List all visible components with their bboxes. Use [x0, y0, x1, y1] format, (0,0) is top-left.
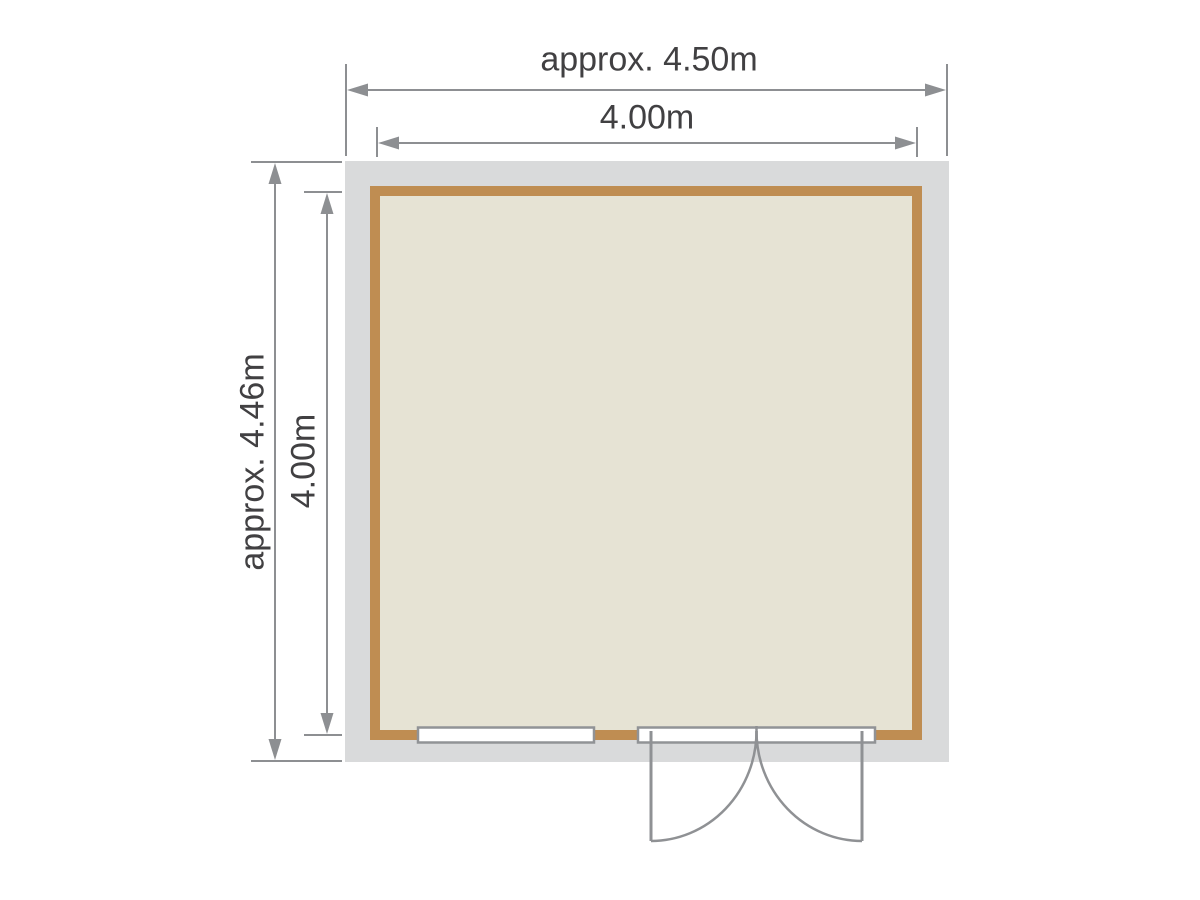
- interior-floor: [380, 196, 912, 730]
- floor-plan-canvas: approx. 4.50m 4.00m approx. 4.46m 4.00m: [0, 0, 1200, 900]
- dim-depth-overall-label: approx. 4.46m: [234, 353, 273, 570]
- dim-width-overall-arrow-left: [347, 84, 368, 97]
- window: [418, 728, 594, 743]
- dim-width-internal-label: 4.00m: [600, 99, 695, 138]
- dim-width-overall-arrow-right: [925, 84, 946, 97]
- dim-width-internal-arrow-left: [378, 137, 399, 150]
- dim-width-overall-label: approx. 4.50m: [540, 41, 757, 80]
- dim-depth-overall-arrow-bottom: [269, 739, 282, 760]
- dim-depth-overall-arrow-top: [269, 163, 282, 184]
- dim-depth-internal-label: 4.00m: [285, 414, 324, 509]
- dim-depth-internal-arrow-bottom: [321, 713, 334, 734]
- dim-width-internal-arrow-right: [895, 137, 916, 150]
- dim-depth-internal-arrow-top: [321, 193, 334, 214]
